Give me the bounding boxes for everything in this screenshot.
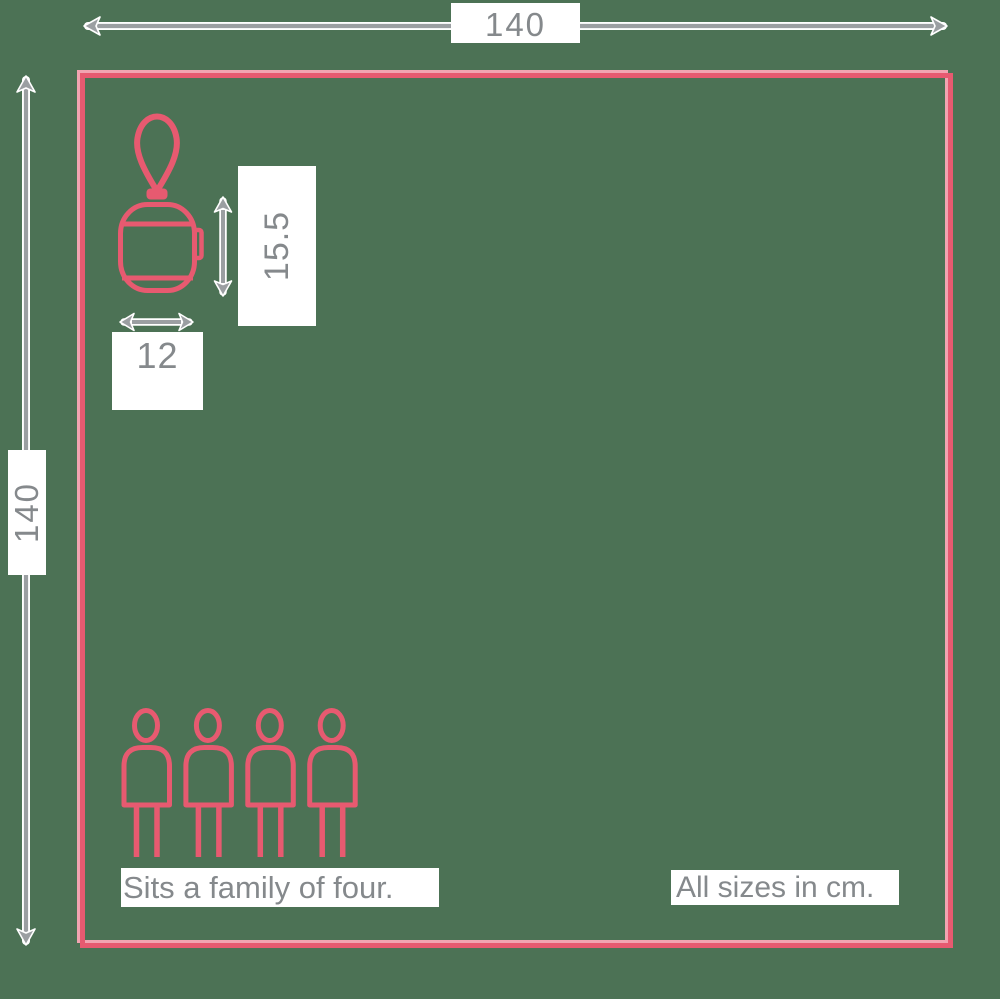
height-dimension-value: 140 [11,482,44,543]
capacity-caption-text: Sits a family of four. [123,872,394,903]
width-dimension-label: 140 [451,3,580,43]
size-diagram: 140 140 15.5 12 Sits a family of four. A… [0,0,1000,999]
item-height-label: 15.5 [238,166,316,326]
capacity-caption: Sits a family of four. [121,868,439,907]
item-width-label: 12 [112,332,203,410]
people-group [124,711,355,858]
lantern-icon [121,117,202,291]
item-height-arrow [215,197,232,296]
units-caption: All sizes in cm. [671,870,899,905]
person-icon [186,711,232,858]
floor-outline-border [83,76,951,946]
floor-outline-highlight [79,72,947,942]
height-dimension-label: 140 [8,450,46,575]
person-icon [310,711,356,858]
diagram-graphics [0,0,1000,999]
lantern-knob [147,189,168,200]
floor-outline [79,72,951,946]
item-width-arrow [120,314,193,331]
lantern-handle [137,117,177,192]
units-caption-text: All sizes in cm. [676,873,874,903]
person-icon [248,711,293,858]
lantern-side-tab [195,230,202,258]
item-width-value: 12 [136,338,178,374]
item-height-value: 15.5 [260,211,294,281]
person-icon [124,711,170,858]
width-dimension-value: 140 [485,8,546,41]
